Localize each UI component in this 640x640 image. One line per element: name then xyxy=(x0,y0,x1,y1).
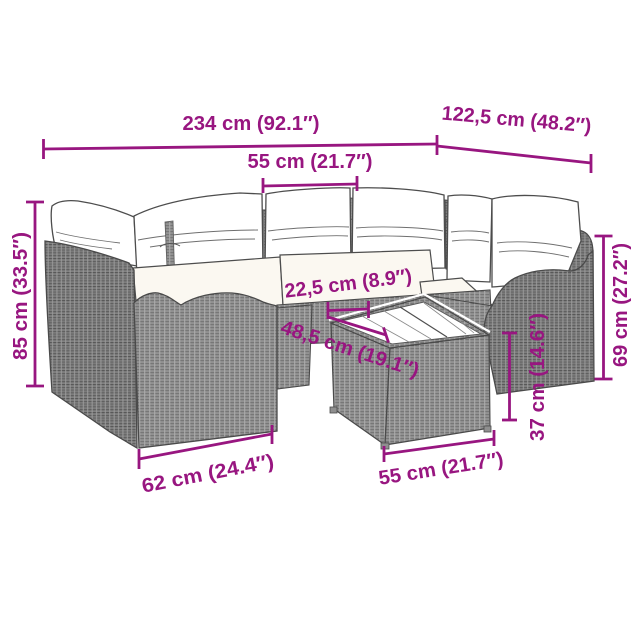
svg-text:37 cm (14.6″): 37 cm (14.6″) xyxy=(527,313,549,441)
svg-text:85 cm (33.5″): 85 cm (33.5″) xyxy=(10,232,32,360)
svg-text:234 cm (92.1″): 234 cm (92.1″) xyxy=(183,113,320,135)
svg-text:55 cm (21.7″): 55 cm (21.7″) xyxy=(248,151,373,173)
svg-text:69 cm (27.2″): 69 cm (27.2″) xyxy=(610,243,632,367)
